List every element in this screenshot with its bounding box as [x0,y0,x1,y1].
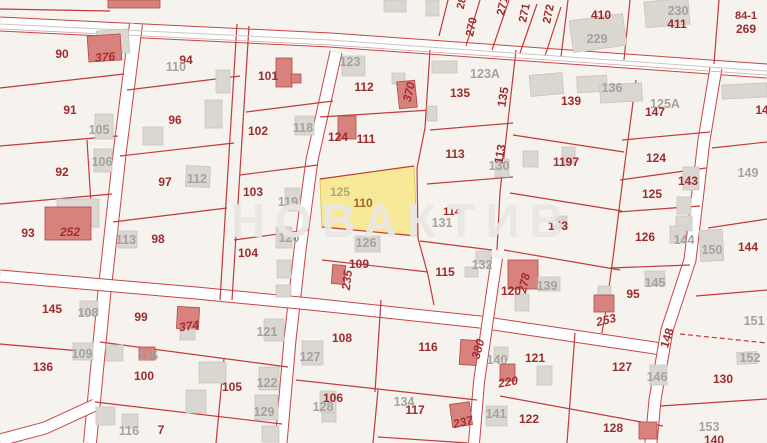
parcel-boundary [113,208,227,222]
building-gray [537,366,552,385]
building-gray [465,267,478,277]
building-gray [699,229,724,261]
building-red [291,74,301,83]
building-gray [285,188,300,211]
building-gray [554,216,567,228]
building-gray [683,167,699,190]
building-gray [259,367,279,390]
building-gray [180,329,195,340]
parcel-boundary [567,333,575,443]
building-gray [185,165,210,187]
building-gray [205,100,222,128]
parcel-boundary [0,9,110,11]
parcel-boundary [492,0,509,50]
building-red [276,58,292,87]
building-gray [427,106,437,121]
building-gray [494,347,508,360]
parcel-boundary [427,177,513,184]
building-gray [722,83,767,99]
building-gray [118,231,137,248]
building-red [331,265,345,285]
building-gray [737,351,758,364]
parcel-boundary [610,265,690,268]
parcel-boundary [378,437,468,443]
building-gray [320,391,336,412]
parcel-boundary [120,143,234,156]
building-red [508,260,538,289]
building-gray [96,407,115,425]
building-gray [143,127,163,145]
building-gray [186,390,206,413]
parcel-boundary [417,50,434,305]
building-gray [342,56,365,76]
building-gray [515,294,529,311]
building-gray [486,406,507,426]
building-gray [670,226,686,243]
building-red [639,422,657,439]
building-gray [495,159,509,177]
parcel-boundary [497,50,516,250]
building-gray [94,149,112,172]
parcel-boundary [87,140,91,204]
building-gray [569,13,627,52]
building-gray [650,365,667,385]
building-red [397,80,418,109]
building-red [449,402,472,428]
building-gray [255,395,278,420]
building-gray [106,345,123,361]
road [0,405,95,440]
parcel-boundary [500,396,663,426]
building-gray [645,271,665,286]
parcel-boundary [714,0,719,64]
building-red [108,0,160,8]
building-red [87,34,122,62]
building-gray [199,362,226,383]
building-red [338,116,356,139]
building-gray [644,0,690,28]
parcel-boundary [510,193,622,211]
building-gray [216,70,230,93]
parcel-boundary [100,342,288,367]
building-gray [95,114,113,139]
parcel-boundary [466,0,480,46]
parcel-boundary [561,0,568,57]
parcel-boundary [712,142,767,148]
parcel-boundary [0,74,124,88]
parcel-boundary [622,132,710,140]
building-gray [262,426,279,442]
parcel-boundary [373,390,378,443]
building-gray [322,413,336,422]
building-gray [264,319,284,341]
map-canvas[interactable]: 2827027127127241022923041184-12699037694… [0,0,767,443]
parcel-boundary [320,110,431,117]
building-gray [598,286,611,296]
building-gray [276,285,291,297]
building-red [139,347,155,360]
building-gray [302,341,323,365]
building-gray [122,414,138,428]
building-red [176,306,199,329]
building-gray [277,260,291,278]
building-gray [355,236,380,252]
building-gray [562,147,575,164]
building-gray [432,61,457,73]
building-gray [295,116,314,135]
parcel-boundary [708,219,767,228]
building-red [594,295,614,312]
building-gray [276,227,292,248]
building-red [459,339,478,365]
building-gray [476,251,491,264]
building-gray [523,151,538,167]
building-gray [384,0,406,12]
parcel-boundary [439,0,448,36]
building-gray [677,197,691,214]
parcel-boundary [420,241,492,250]
building-gray [529,73,564,97]
parcel-boundary [520,4,537,53]
map-svg [0,0,767,443]
building-gray [80,301,98,315]
building-gray [600,83,643,103]
building-red [500,364,515,381]
parcel-boundary [696,290,767,296]
building-gray [426,0,439,16]
building-red [45,207,91,240]
building-gray [73,343,93,360]
parcel-boundary [430,123,513,130]
building-gray [538,277,560,291]
parcel-boundary [680,334,767,343]
parcel-boundary [660,399,767,406]
